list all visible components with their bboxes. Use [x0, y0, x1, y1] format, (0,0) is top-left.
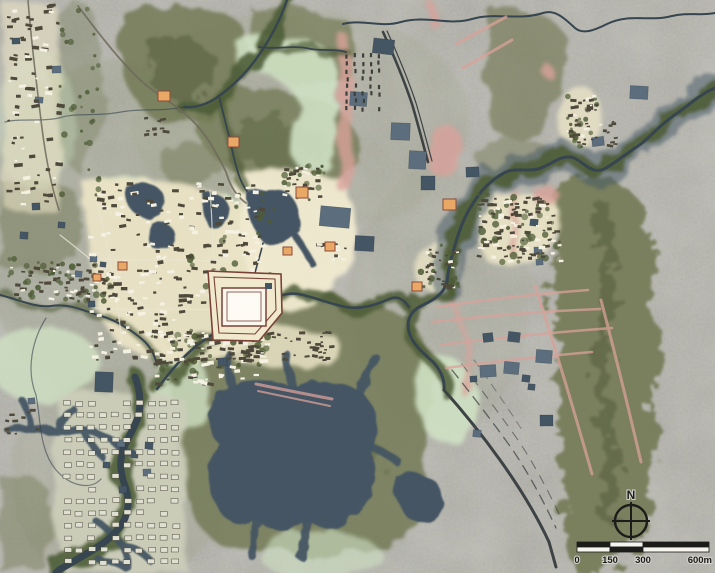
city-block: [65, 536, 72, 541]
building: [155, 375, 160, 378]
city-block: [124, 548, 131, 553]
building: [107, 308, 111, 311]
building: [510, 231, 515, 234]
building: [218, 183, 224, 186]
building: [48, 193, 53, 197]
lake-reservoir: [207, 381, 377, 532]
building: [147, 202, 150, 204]
map-stage: N 0150300600m: [0, 0, 715, 573]
city-block: [149, 547, 156, 552]
tree-icon: [35, 285, 41, 291]
building: [36, 428, 40, 431]
building: [167, 378, 170, 380]
city-block: [76, 523, 83, 528]
building: [515, 214, 522, 217]
ruin-mark: [369, 85, 371, 89]
building: [110, 329, 114, 332]
tree-icon: [455, 282, 459, 286]
building: [201, 348, 204, 350]
city-block: [65, 437, 72, 442]
building: [158, 330, 164, 334]
pond: [536, 349, 553, 363]
scale-bar-segment: [610, 547, 643, 552]
ruin-mark: [354, 92, 356, 96]
building: [594, 109, 597, 111]
building: [113, 282, 122, 286]
city-block: [149, 401, 156, 406]
city-block: [89, 487, 96, 492]
city-block: [160, 512, 167, 517]
building: [179, 294, 187, 298]
pond: [32, 203, 40, 210]
building: [128, 311, 132, 313]
building: [160, 127, 165, 129]
pond: [466, 167, 479, 177]
pond: [12, 38, 20, 44]
tree-icon: [454, 275, 457, 278]
building: [320, 345, 324, 347]
building: [535, 238, 541, 241]
tree-icon: [272, 207, 275, 210]
building: [127, 182, 134, 186]
city-block: [171, 425, 178, 430]
tree-icon: [91, 109, 95, 113]
city-block: [161, 461, 168, 466]
building: [14, 182, 20, 185]
ruin-mark: [346, 84, 348, 88]
building: [261, 245, 267, 248]
pond: [480, 365, 497, 378]
building: [219, 217, 224, 219]
city-block: [136, 535, 143, 540]
building: [200, 290, 205, 294]
city-block: [171, 499, 178, 504]
building: [293, 170, 299, 173]
building: [189, 226, 194, 230]
building: [169, 361, 173, 363]
building: [307, 341, 311, 344]
temple-marker: [93, 274, 101, 281]
ruin-mark: [345, 70, 347, 74]
building: [523, 201, 527, 205]
building: [246, 186, 251, 189]
tree-icon: [320, 165, 323, 168]
building: [285, 337, 288, 339]
pond: [355, 235, 375, 251]
ruin-mark: [362, 76, 364, 80]
tree-icon: [59, 191, 65, 197]
building: [56, 111, 62, 115]
city-block: [64, 499, 71, 504]
tree-icon: [69, 106, 75, 112]
tree-icon: [234, 205, 239, 210]
building: [110, 351, 113, 353]
tree-icon: [286, 182, 291, 187]
scale-bar-label: 600m: [688, 555, 712, 566]
ruin-mark: [347, 77, 349, 81]
ruin-mark: [345, 55, 347, 59]
building: [477, 204, 480, 206]
building: [522, 240, 525, 242]
tree-icon: [308, 198, 311, 201]
scale-bar-segment: [577, 547, 610, 552]
building: [334, 254, 338, 257]
building: [482, 220, 486, 223]
building: [573, 133, 580, 136]
city-block: [171, 400, 178, 405]
building: [510, 235, 517, 238]
building: [211, 261, 217, 264]
building: [92, 355, 99, 358]
temple-marker: [158, 91, 170, 101]
city-block: [113, 425, 120, 430]
scale-bar-segment: [610, 542, 643, 547]
tree-icon: [87, 140, 93, 146]
city-block: [171, 547, 178, 552]
building: [66, 270, 69, 273]
building: [195, 347, 200, 349]
building: [121, 287, 128, 290]
tree-icon: [60, 262, 65, 267]
building: [49, 11, 54, 14]
pond: [630, 86, 649, 100]
building: [206, 338, 213, 341]
tree-icon: [262, 200, 265, 203]
tree-icon: [440, 244, 443, 247]
ruin-mark: [377, 61, 379, 65]
tree-icon: [268, 220, 272, 224]
tree-icon: [78, 95, 82, 99]
city-block: [63, 474, 70, 479]
city-block: [125, 499, 132, 504]
city-block: [161, 548, 168, 553]
building: [15, 283, 21, 287]
tree-icon: [60, 32, 66, 38]
city-block: [124, 510, 131, 515]
tree-icon: [96, 63, 101, 68]
building: [613, 143, 617, 145]
building: [103, 292, 106, 294]
building: [252, 236, 257, 239]
building: [15, 188, 20, 191]
city-block: [149, 487, 156, 492]
tree-icon: [570, 128, 573, 131]
building: [12, 419, 18, 422]
tree-icon: [23, 280, 28, 285]
building: [13, 137, 17, 140]
ruin-mark: [370, 53, 372, 57]
city-block: [161, 559, 168, 564]
building: [170, 347, 175, 350]
city-block: [89, 523, 96, 528]
city-block: [89, 511, 96, 516]
building: [507, 247, 510, 249]
building: [55, 162, 63, 166]
building: [257, 347, 260, 349]
building: [253, 355, 259, 358]
tree-icon: [545, 207, 550, 212]
tree-icon: [58, 281, 63, 286]
city-block: [136, 450, 143, 455]
building: [336, 249, 341, 251]
city-block: [136, 400, 143, 405]
building: [45, 91, 53, 95]
building: [136, 344, 140, 346]
tree-icon: [492, 221, 499, 228]
building: [522, 209, 526, 211]
building: [208, 197, 214, 201]
building: [30, 271, 34, 274]
ruin-mark: [354, 106, 356, 110]
pond: [391, 123, 411, 141]
building: [46, 168, 51, 171]
ruin-mark: [378, 68, 380, 72]
building: [153, 133, 157, 136]
tree-icon: [583, 117, 588, 122]
city-block: [112, 522, 119, 527]
city-block: [88, 475, 95, 480]
city-block: [76, 426, 83, 431]
building: [31, 72, 35, 75]
building: [216, 366, 221, 369]
city-block: [172, 559, 179, 564]
building: [152, 127, 157, 131]
building: [155, 382, 162, 386]
building: [133, 302, 137, 304]
building: [92, 264, 96, 266]
pond: [20, 232, 28, 240]
tree-icon: [92, 33, 95, 36]
city-block: [88, 451, 95, 456]
building: [242, 342, 248, 345]
city-block: [99, 413, 106, 418]
building: [578, 101, 582, 104]
building: [481, 199, 489, 203]
pond: [103, 462, 110, 468]
city-block: [64, 450, 71, 455]
building: [115, 298, 120, 301]
city-block: [160, 450, 167, 455]
building: [559, 260, 564, 263]
building: [177, 348, 183, 351]
building: [7, 432, 11, 435]
ruin-mark: [370, 62, 372, 66]
pond: [372, 38, 395, 55]
building: [228, 357, 231, 359]
tree-icon: [577, 144, 582, 149]
tree-icon: [24, 263, 30, 269]
building: [79, 279, 84, 282]
city-block: [87, 425, 94, 430]
tree-icon: [11, 256, 17, 262]
temple-marker: [443, 199, 456, 210]
temple-marker: [412, 282, 422, 291]
tree-icon: [85, 90, 90, 95]
building: [238, 341, 242, 344]
building: [195, 294, 199, 296]
city-block: [64, 413, 71, 418]
building: [155, 320, 158, 322]
pond: [507, 331, 520, 342]
city-block: [87, 413, 94, 418]
building: [174, 358, 179, 362]
building: [190, 197, 194, 201]
building: [32, 46, 39, 50]
building: [592, 95, 596, 98]
tree-icon: [95, 87, 99, 91]
building: [105, 355, 110, 359]
building: [172, 189, 179, 192]
building: [126, 313, 130, 315]
building: [115, 183, 119, 186]
building: [8, 80, 11, 82]
building: [254, 374, 259, 376]
city-block: [76, 402, 83, 407]
tree-icon: [311, 171, 314, 174]
building: [317, 243, 323, 246]
building: [225, 230, 234, 234]
building: [160, 302, 165, 306]
city-block: [148, 414, 155, 419]
tree-icon: [578, 118, 581, 121]
building: [193, 357, 200, 360]
tree-icon: [61, 131, 68, 138]
tree-icon: [298, 173, 302, 177]
building: [87, 293, 91, 295]
city-block: [148, 450, 155, 455]
building: [546, 216, 548, 218]
pond: [95, 372, 114, 393]
building: [53, 278, 57, 280]
building: [524, 231, 530, 235]
building: [551, 240, 556, 242]
building: [539, 246, 546, 249]
building: [34, 99, 39, 102]
building: [14, 293, 19, 296]
ruin-mark: [378, 85, 380, 89]
city-block: [124, 425, 131, 430]
building: [484, 241, 490, 244]
city-block: [160, 414, 167, 419]
building: [216, 358, 219, 360]
city-block: [172, 451, 179, 456]
tree-icon: [569, 123, 572, 126]
city-block: [159, 401, 166, 406]
tree-icon: [8, 270, 14, 276]
building: [341, 258, 346, 260]
temple-marker: [296, 187, 308, 198]
building: [248, 346, 251, 348]
city-block: [173, 413, 180, 418]
city-block: [135, 412, 142, 417]
tree-icon: [37, 261, 40, 264]
building: [225, 197, 231, 200]
city-block: [113, 498, 120, 503]
building: [15, 433, 18, 435]
building: [447, 287, 452, 289]
building: [137, 270, 142, 272]
building: [103, 279, 107, 282]
building: [120, 321, 125, 325]
city-block: [124, 523, 131, 528]
tree-icon: [29, 294, 35, 300]
tree-icon: [64, 273, 67, 276]
building: [92, 289, 96, 291]
city-block: [123, 401, 130, 406]
city-block: [148, 474, 155, 479]
building: [425, 251, 429, 254]
tree-icon: [510, 194, 517, 201]
building: [106, 207, 109, 209]
building: [89, 253, 96, 257]
city-block: [65, 524, 72, 529]
building: [160, 317, 167, 321]
pond: [483, 332, 494, 342]
tree-icon: [565, 94, 571, 100]
tree-icon: [260, 192, 265, 197]
building: [296, 338, 301, 341]
building: [253, 190, 259, 194]
building: [332, 258, 336, 260]
building: [102, 202, 106, 205]
building: [322, 359, 326, 362]
building: [316, 174, 319, 176]
pond: [522, 375, 531, 383]
compass-north-label: N: [627, 488, 636, 502]
pond: [421, 176, 435, 190]
tree-icon: [478, 207, 482, 211]
building: [558, 244, 562, 246]
building: [528, 257, 532, 260]
ruin-mark: [346, 100, 348, 104]
city-block: [123, 438, 130, 443]
building: [427, 278, 431, 280]
building: [243, 358, 252, 362]
building: [74, 289, 78, 292]
city-block: [160, 536, 167, 541]
building: [21, 271, 25, 273]
tree-icon: [256, 232, 259, 235]
building: [34, 181, 38, 184]
building: [15, 114, 19, 116]
building: [323, 352, 326, 354]
city-block: [111, 412, 118, 417]
tree-icon: [510, 252, 518, 260]
ruin-mark: [345, 92, 347, 96]
city-block: [112, 559, 119, 564]
ruin-mark: [355, 83, 357, 87]
building: [89, 271, 92, 273]
building: [86, 295, 90, 297]
pond: [52, 66, 61, 73]
ruin-mark: [354, 69, 356, 73]
tree-icon: [93, 291, 100, 298]
tree-icon: [520, 237, 528, 245]
building: [20, 136, 24, 138]
building: [65, 289, 68, 291]
building: [183, 286, 186, 288]
building: [228, 347, 235, 350]
city-block: [64, 425, 71, 430]
pond: [218, 358, 228, 367]
building: [7, 120, 10, 122]
building: [144, 117, 148, 120]
city-block: [65, 463, 72, 468]
building: [245, 218, 249, 220]
building: [196, 212, 201, 215]
ruin-mark: [362, 53, 364, 57]
city-block: [112, 450, 119, 455]
